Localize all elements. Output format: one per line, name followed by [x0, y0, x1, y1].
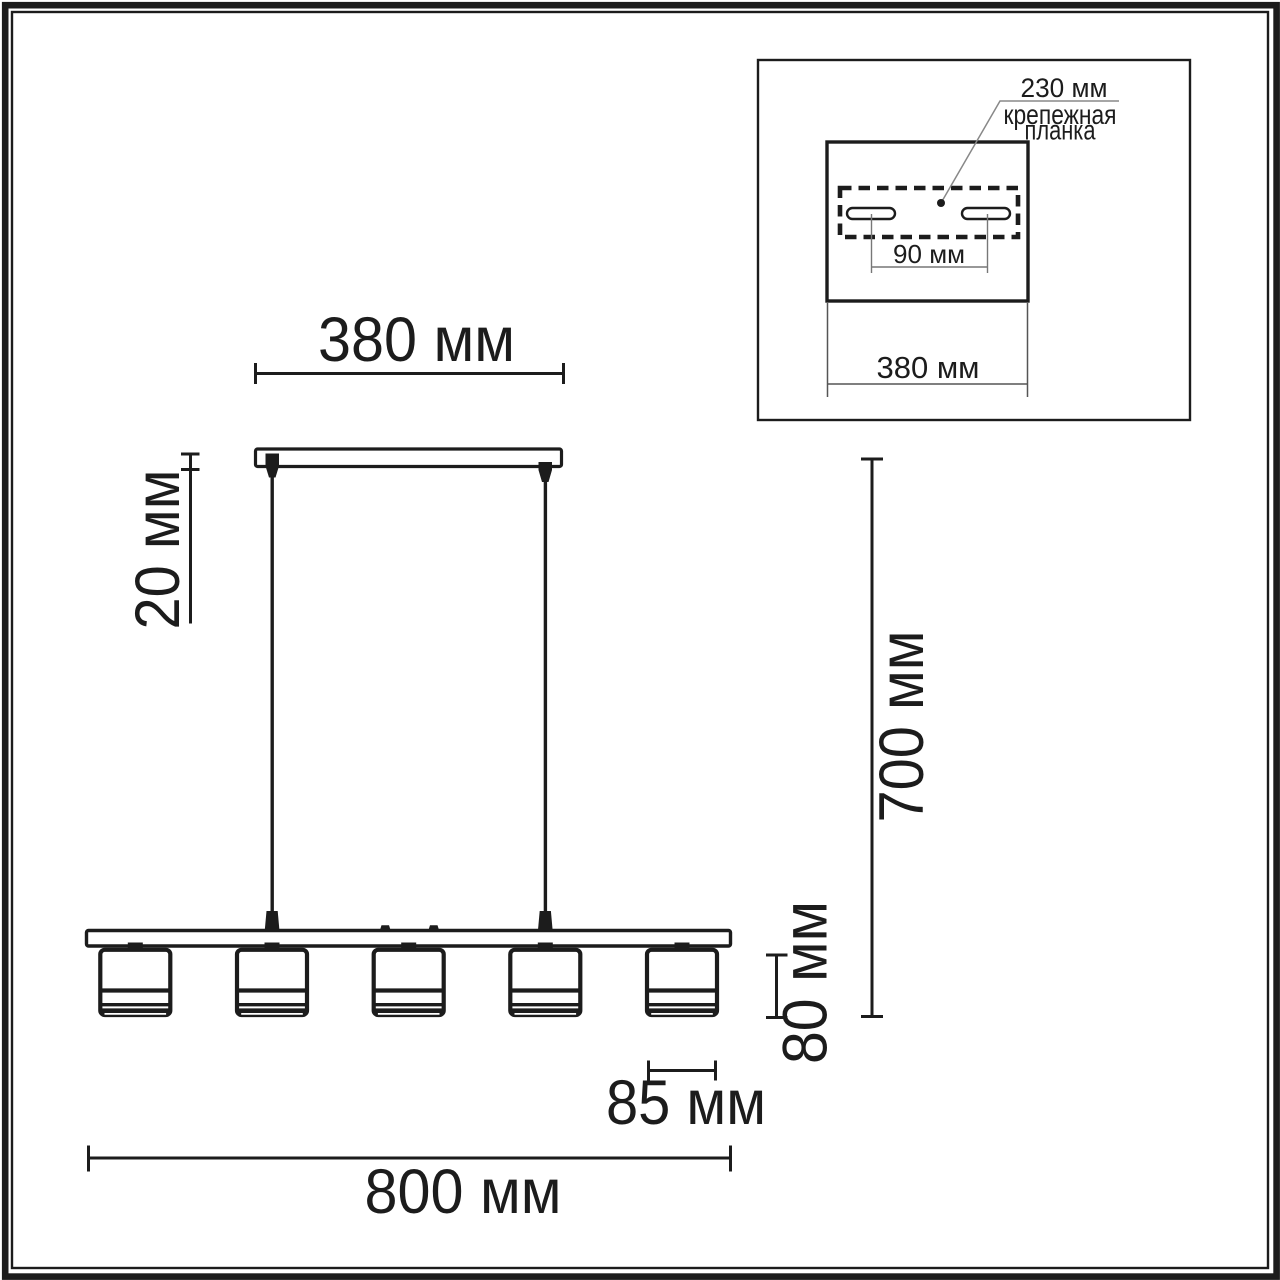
svg-text:800 мм: 800 мм — [365, 1157, 562, 1227]
svg-text:20 мм: 20 мм — [123, 470, 193, 630]
svg-text:планка: планка — [1025, 115, 1096, 146]
svg-text:700 мм: 700 мм — [867, 631, 937, 823]
svg-text:380 мм: 380 мм — [318, 305, 515, 375]
svg-text:80 мм: 80 мм — [771, 901, 841, 1064]
svg-text:380 мм: 380 мм — [877, 350, 980, 385]
svg-text:85 мм: 85 мм — [606, 1068, 766, 1138]
svg-text:90 мм: 90 мм — [893, 239, 965, 269]
